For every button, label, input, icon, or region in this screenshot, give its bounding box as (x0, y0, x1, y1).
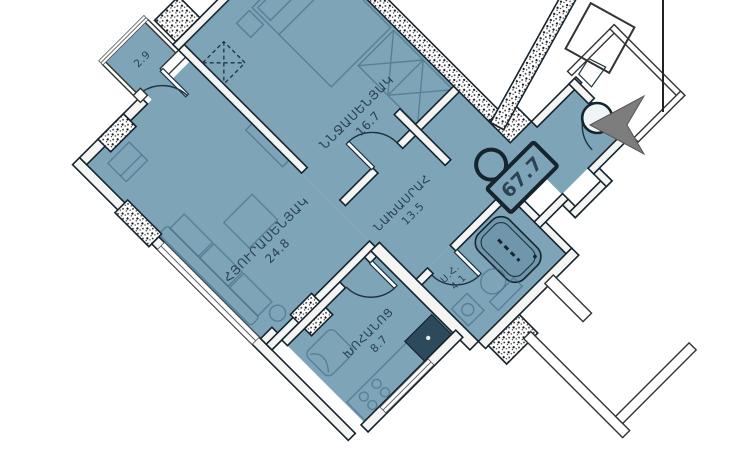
floor-plan-canvas: 67.7 ՀՅՈՒՐԱՍԵՆՅԱԿ 24.8 ՆՆՋԱՍԵՆՅԱԿ 16.7 Ն… (0, 0, 730, 450)
neighbor-wall (524, 332, 630, 438)
corridor-south-wall (534, 194, 568, 228)
apartment-plan: 67.7 ՀՅՈՒՐԱՍԵՆՅԱԿ 24.8 ՆՆՋԱՍԵՆՅԱԿ 16.7 Ն… (31, 0, 730, 450)
